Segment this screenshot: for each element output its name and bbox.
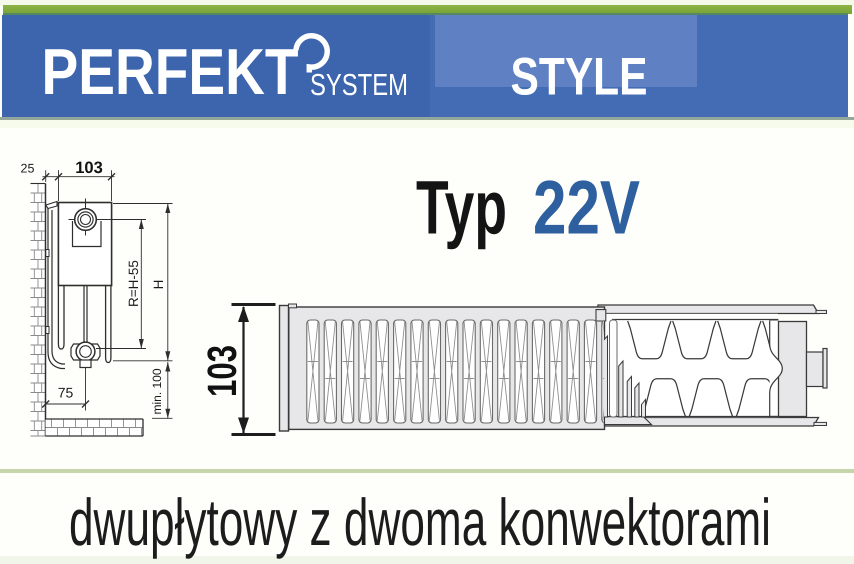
svg-text:min. 100: min. 100 bbox=[150, 368, 164, 414]
svg-text:dwupłytowy z dwoma konwektoram: dwupłytowy z dwoma konwektorami bbox=[69, 485, 771, 559]
svg-text:STYLE: STYLE bbox=[511, 48, 648, 107]
svg-text:PERFEKT: PERFEKT bbox=[42, 35, 299, 108]
svg-text:75: 75 bbox=[58, 385, 74, 401]
svg-text:22V: 22V bbox=[533, 166, 640, 251]
svg-text:R=H-55: R=H-55 bbox=[126, 260, 141, 307]
svg-text:103: 103 bbox=[199, 345, 245, 397]
svg-text:25: 25 bbox=[21, 162, 35, 176]
svg-text:H: H bbox=[151, 280, 166, 290]
svg-text:103: 103 bbox=[75, 159, 103, 177]
svg-text:Typ: Typ bbox=[416, 166, 507, 251]
